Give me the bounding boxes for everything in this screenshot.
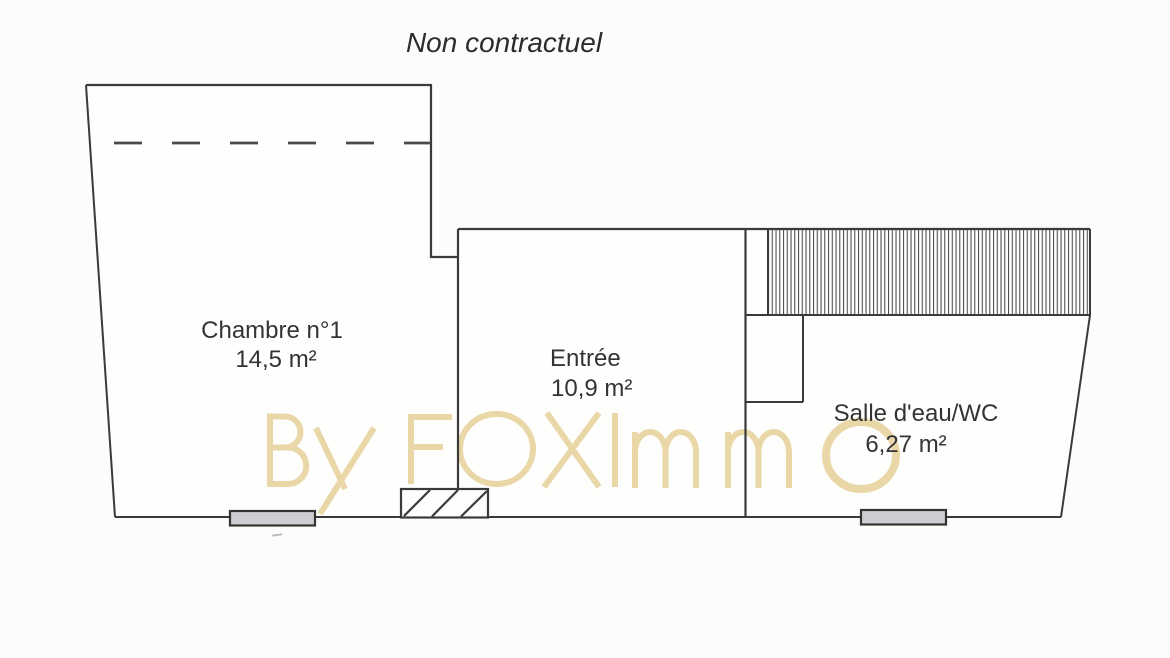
svg-text:6,27 m²: 6,27 m² <box>865 431 946 458</box>
svg-text:Chambre n°1: Chambre n°1 <box>201 317 343 344</box>
svg-text:Salle d'eau/WC: Salle d'eau/WC <box>834 400 999 427</box>
svg-text:10,9 m²: 10,9 m² <box>551 375 632 402</box>
svg-text:Non contractuel: Non contractuel <box>406 27 603 58</box>
svg-text:14,5 m²: 14,5 m² <box>235 346 316 373</box>
svg-text:Entrée: Entrée <box>550 345 621 372</box>
